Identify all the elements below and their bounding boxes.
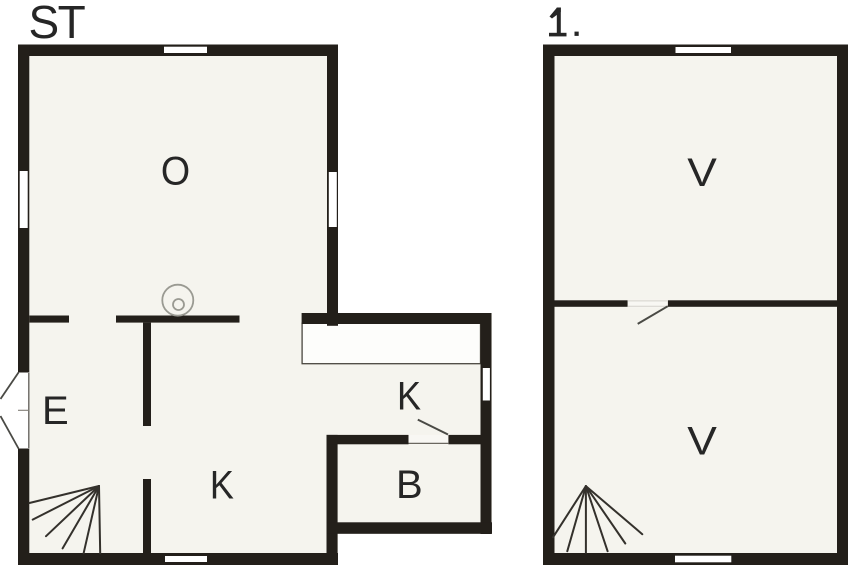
svg-text:E: E	[42, 389, 69, 433]
svg-text:V: V	[687, 419, 717, 463]
svg-text:V: V	[687, 150, 717, 194]
svg-text:B: B	[396, 463, 423, 507]
svg-text:ST: ST	[29, 0, 86, 48]
svg-text:K: K	[210, 464, 234, 508]
svg-text:O: O	[161, 149, 190, 193]
svg-text:K: K	[397, 375, 421, 419]
